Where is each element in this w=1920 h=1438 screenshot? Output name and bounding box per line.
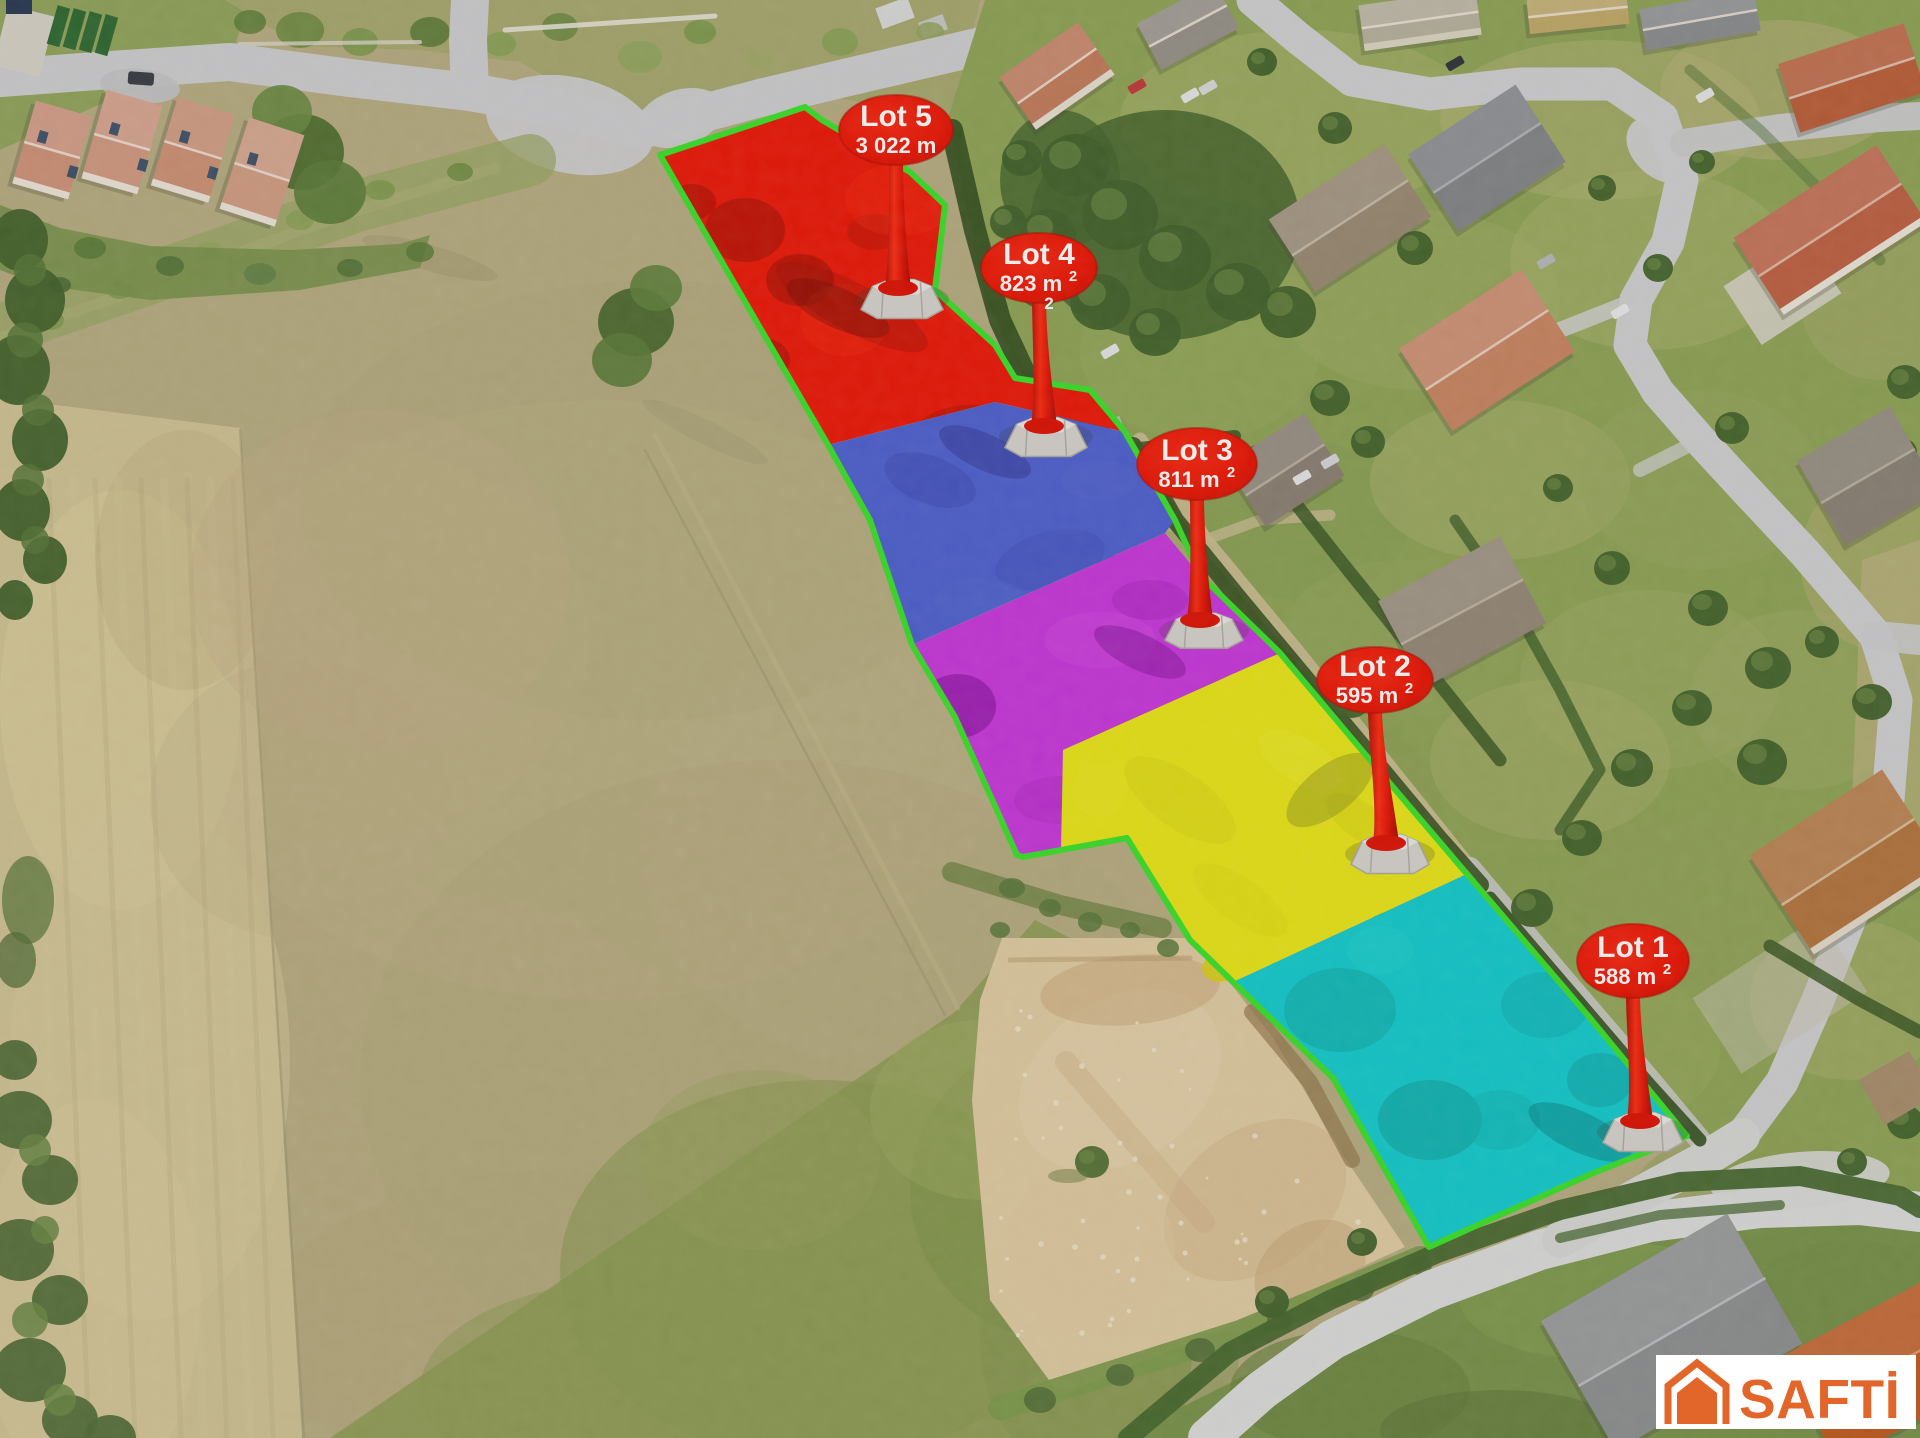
svg-text:SAFTİ: SAFTİ bbox=[1739, 1368, 1900, 1430]
